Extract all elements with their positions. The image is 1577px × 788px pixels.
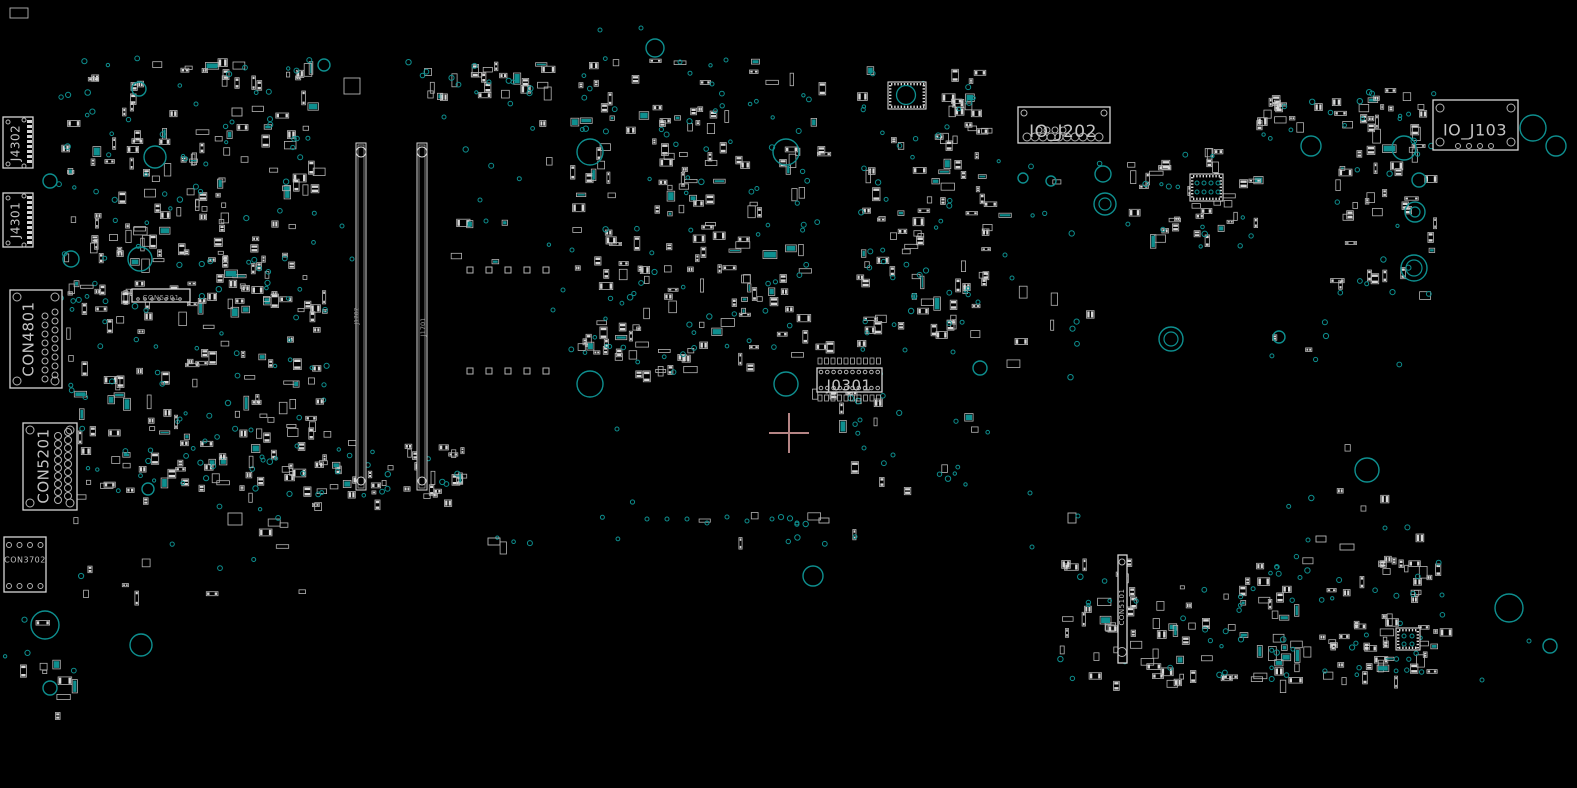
connector-label-IO_J103: IO_J103 [1443,121,1507,141]
connector-CON3702[interactable]: CON3702 [4,537,46,592]
connector-J4301[interactable]: J4301 [3,193,33,247]
connector-CON5201[interactable]: CON5201 [23,423,77,510]
connector-CON5301[interactable]: CON5301 [132,289,190,302]
slot-label: J1702 [354,307,361,325]
connector-label-CON5201: CON5201 [35,428,53,503]
board-canvas[interactable]: J1702J1701J4302J4301CON4801CON5201CON370… [0,0,1577,788]
connector-label-J0301: J0301 [825,377,871,395]
connector-label-CON5301: CON5301 [143,294,180,302]
connector-label-J4301: J4301 [9,202,23,240]
connector-label-CON5101: CON5101 [1118,589,1126,626]
connector-label-CON4801: CON4801 [20,301,38,376]
qfn-chip[interactable] [1190,174,1223,201]
slot-right[interactable]: J1701 [417,143,427,490]
connector-CON5101[interactable]: CON5101 [1118,555,1128,663]
connector-label-J4302: J4302 [9,125,23,163]
connector-label-IO_J202: IO_J202 [1029,122,1097,142]
connector-label-CON3702: CON3702 [4,556,46,565]
connector-IO_J202[interactable]: IO_J202 [1018,107,1110,143]
qfn-chip-bottom-right[interactable] [1396,628,1420,650]
connector-IO_J103[interactable]: IO_J103 [1433,100,1518,150]
connector-CON4801[interactable]: CON4801 [10,290,62,388]
chip-with-thermal-ring[interactable] [888,82,926,109]
connector-J4302[interactable]: J4302 [3,117,33,168]
slot-label: J1701 [419,318,427,337]
boardview-stage: J1702J1701J4302J4301CON4801CON5201CON370… [0,0,1577,788]
board-background [0,0,1577,788]
